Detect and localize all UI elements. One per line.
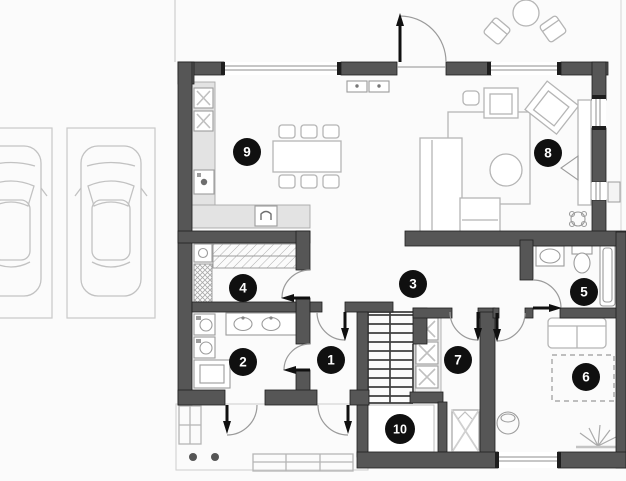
terrace-furniture	[483, 0, 567, 45]
room-marker-1: 1	[317, 346, 345, 374]
washbasin-icon	[536, 246, 564, 266]
armchair	[484, 88, 518, 118]
window	[592, 95, 606, 130]
duct-shaft	[194, 264, 212, 302]
washing-machine-icon	[194, 337, 215, 358]
armchair	[525, 81, 579, 134]
toilet-icon	[572, 244, 592, 273]
car-icon	[0, 146, 47, 296]
shower-cabinet	[194, 360, 230, 388]
porch	[176, 404, 368, 471]
room-marker-4: 4	[229, 274, 257, 302]
coffee-table	[490, 154, 522, 186]
outdoor-chair	[539, 15, 567, 43]
ac-unit-icon	[608, 182, 620, 202]
svg-text:9: 9	[243, 145, 251, 160]
room-marker-5: 5	[570, 278, 598, 306]
door-swing	[283, 344, 310, 374]
side-table	[463, 91, 479, 105]
window	[592, 182, 606, 200]
boiler-icon	[194, 244, 212, 262]
parking-space	[0, 128, 52, 318]
svg-text:7: 7	[454, 353, 462, 368]
sink-icon	[255, 206, 277, 226]
bedroom-6	[497, 318, 620, 447]
room-marker-3: 3	[399, 270, 427, 298]
tv-console	[578, 100, 591, 205]
radiator-icon	[347, 81, 389, 92]
outdoor-chair	[483, 17, 511, 45]
svg-text:3: 3	[409, 277, 417, 292]
window	[487, 62, 561, 75]
vanity-basins	[226, 313, 298, 335]
door-swing	[317, 312, 349, 341]
door-swing	[281, 270, 310, 302]
door-swing	[223, 405, 257, 435]
window	[495, 452, 561, 468]
svg-text:2: 2	[239, 355, 247, 370]
room-marker-8: 8	[534, 139, 562, 167]
room-marker-7: 7	[444, 346, 472, 374]
parking-area	[0, 128, 155, 318]
svg-text:10: 10	[393, 422, 407, 436]
entrance-door-swing	[396, 13, 446, 62]
room-marker-9: 9	[233, 138, 261, 166]
bathtub-icon	[600, 244, 615, 306]
shower-icon	[452, 410, 479, 452]
plant-icon	[570, 212, 587, 227]
bench	[253, 454, 353, 471]
svg-text:8: 8	[544, 146, 552, 161]
svg-text:1: 1	[327, 353, 335, 368]
car-icon	[75, 146, 147, 296]
door-swing	[318, 405, 352, 435]
parking-space	[67, 128, 155, 318]
window	[221, 62, 341, 75]
svg-text:4: 4	[239, 281, 247, 296]
tv-icon	[561, 156, 578, 180]
room-marker-2: 2	[229, 348, 257, 376]
pot-icon	[497, 412, 519, 434]
shelf-unit	[179, 406, 201, 444]
plant-icon	[576, 425, 620, 447]
kitchen-counter	[192, 205, 310, 228]
floor-plan-canvas: 1 2 3 4 5 6 7 8 9 10	[0, 0, 626, 481]
dining-table	[273, 141, 341, 172]
washing-machine-icon	[194, 314, 215, 335]
svg-text:6: 6	[582, 370, 590, 385]
door-swing	[450, 312, 482, 341]
room-marker-10: 10	[385, 414, 415, 444]
living-room	[420, 81, 591, 232]
appliance-icon	[416, 342, 438, 364]
svg-text:5: 5	[580, 285, 588, 300]
sofa	[548, 318, 606, 348]
dining-set	[273, 125, 341, 188]
outdoor-table	[513, 0, 539, 26]
corner-sofa	[420, 138, 500, 232]
bollard-icon	[189, 453, 197, 461]
kitchen-sink-icon	[194, 170, 214, 194]
appliance-icon	[416, 366, 438, 388]
door-swing	[493, 313, 525, 342]
room-marker-6: 6	[572, 363, 600, 391]
door-swing	[533, 280, 562, 312]
bollard-icon	[211, 453, 219, 461]
